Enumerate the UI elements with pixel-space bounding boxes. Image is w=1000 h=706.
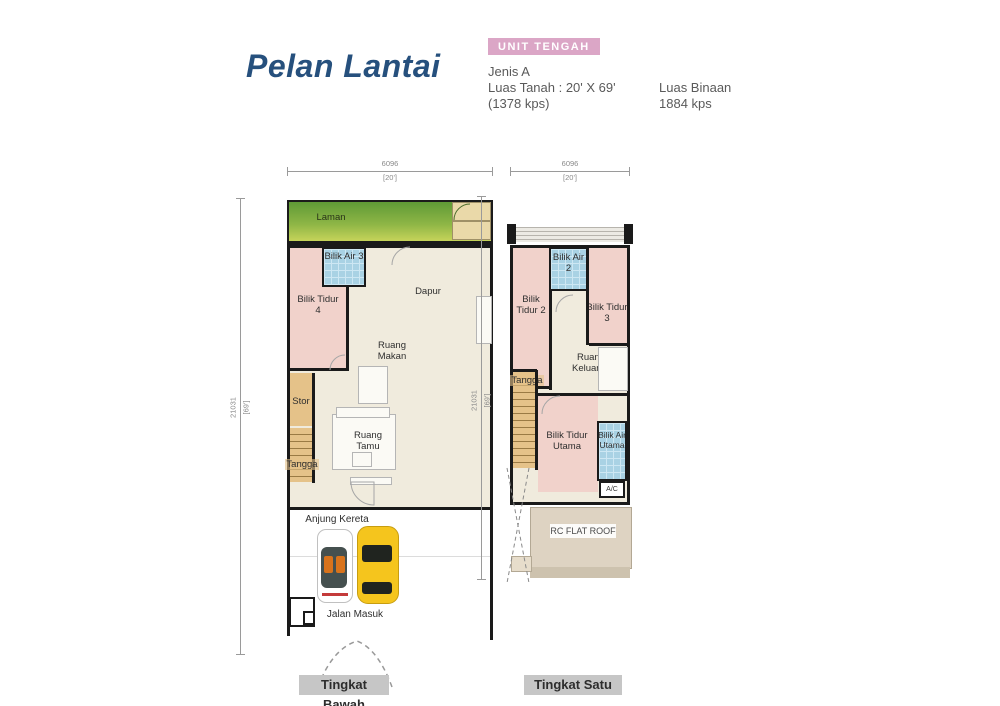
rc-flat-roof-edge	[530, 567, 630, 578]
room-label-bilik-tidur-3: Bilik Tidur 3	[585, 302, 629, 324]
dimension-depth-ft: [69']	[483, 371, 492, 431]
ac-ledge: A/C	[599, 481, 625, 498]
dimension-tick	[477, 579, 486, 580]
wall-segment	[513, 369, 537, 372]
wall-segment	[507, 224, 516, 244]
room-bilik-tidur-3	[589, 248, 627, 345]
dimension-width-ft: [20']	[510, 173, 630, 182]
floor-plan-page: Pelan Lantai UNIT TENGAH Jenis A Luas Ta…	[0, 0, 1000, 706]
wall-segment	[586, 248, 589, 345]
room-label-bilik-tidur-2: Bilik Tidur 2	[511, 294, 551, 316]
room-bilik-tidur-2	[513, 248, 549, 388]
roof-step	[511, 556, 532, 572]
dimension-width: 6096	[510, 159, 630, 168]
rc-flat-roof	[530, 507, 632, 569]
wall-segment	[589, 343, 627, 346]
dimension-depth: 21031	[470, 371, 479, 431]
room-label-bilik-air-utama: Bilik Air Utama	[595, 430, 629, 450]
caption-first-floor: Tingkat Satu	[524, 675, 622, 695]
room-label-bilik-air-2: Bilik Air 2	[549, 252, 588, 274]
dimension-line	[510, 171, 630, 172]
room-label-rc-flat-roof: RC FLAT ROOF	[550, 524, 616, 538]
wall-segment	[549, 291, 552, 390]
first-floor-plan: 6096 [20'] 21031 [69'] Bilik Air 2 Bilik…	[0, 0, 1000, 706]
dimension-tick	[477, 196, 486, 197]
room-label-bilik-tidur-utama: Bilik Tidur Utama	[546, 430, 588, 452]
wall-segment	[624, 224, 633, 244]
window-band	[516, 227, 624, 242]
caption-ground-floor: Tingkat Bawah	[299, 675, 389, 695]
stairs-first	[513, 372, 535, 468]
room-label-tangga: Tangga	[510, 375, 544, 386]
daybed	[598, 347, 628, 391]
